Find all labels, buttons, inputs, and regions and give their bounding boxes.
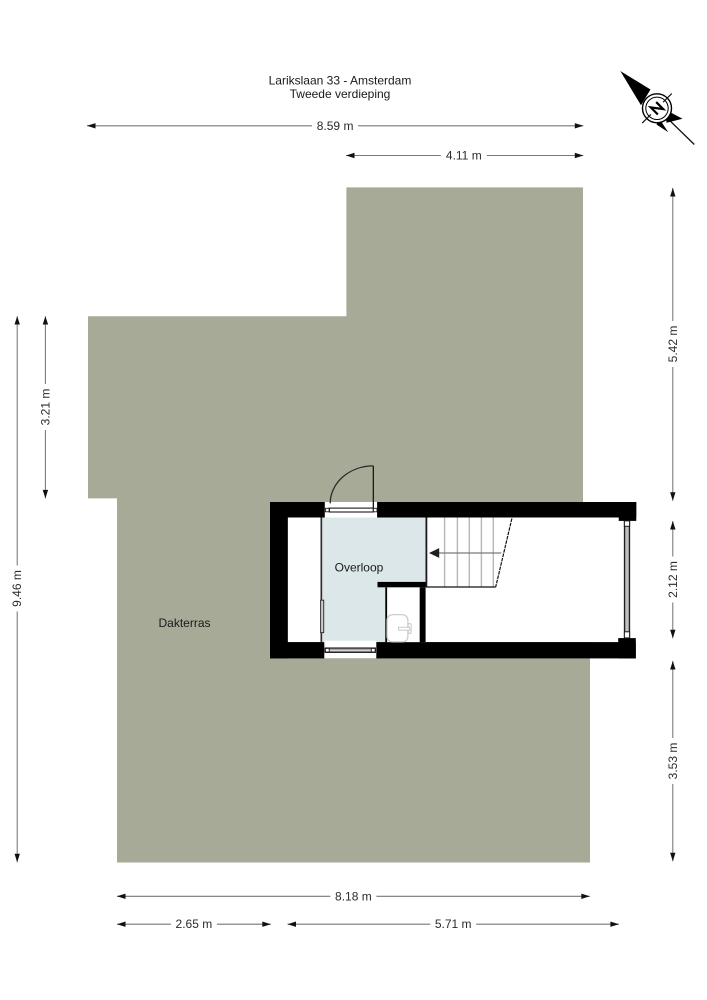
svg-text:2.12 m: 2.12 m [666,561,680,598]
svg-text:Larikslaan 33 - Amsterdam: Larikslaan 33 - Amsterdam [269,74,412,88]
svg-text:3.53 m: 3.53 m [666,743,680,780]
svg-text:3.21 m: 3.21 m [38,389,52,426]
svg-text:2.65 m: 2.65 m [176,917,213,931]
svg-text:5.42 m: 5.42 m [666,326,680,363]
svg-text:8.59 m: 8.59 m [317,119,354,133]
svg-text:Overloop: Overloop [335,561,384,575]
svg-text:9.46 m: 9.46 m [10,570,24,607]
svg-text:Tweede verdieping: Tweede verdieping [290,87,391,101]
svg-text:8.18 m: 8.18 m [335,889,372,903]
svg-text:Dakterras: Dakterras [158,616,210,630]
svg-text:4.11 m: 4.11 m [446,149,482,163]
svg-text:5.71 m: 5.71 m [435,917,472,931]
